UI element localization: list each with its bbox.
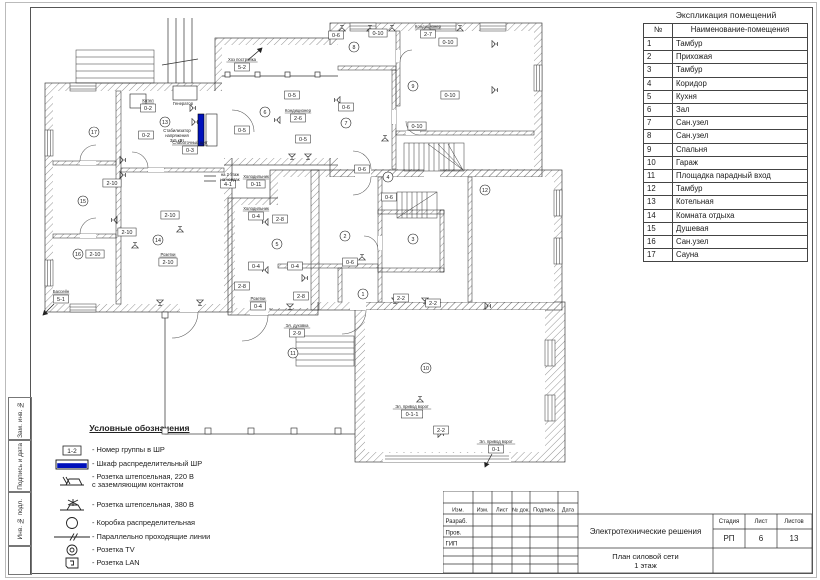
explication-row: 17 Сауна	[644, 249, 808, 262]
room-number-cell: 17	[644, 249, 673, 262]
room-number-cell: 7	[644, 117, 673, 130]
tb-col-header: Дата	[562, 508, 575, 514]
legend-item: - Розетка штепсельная, 380 В	[52, 498, 194, 512]
group-label-text: 0-2	[142, 133, 150, 139]
room-number-cell: 4	[644, 77, 673, 90]
room-name-cell: Сан.узел	[673, 117, 808, 130]
explication-row: 10 Гараж	[644, 156, 808, 169]
sheet-title-1: План силовой сети	[612, 552, 678, 561]
room-number: 4	[383, 172, 393, 182]
group-label-text: 0-1	[492, 447, 500, 453]
room-number-cell: 10	[644, 156, 673, 169]
group-label-text: 2-7	[424, 32, 432, 38]
explication-row: 12 Тамбур	[644, 183, 808, 196]
explication-row: 16 Сан.узел	[644, 236, 808, 249]
project-title: Электротехнические решения	[590, 527, 702, 536]
explication-row: 9 Спальня	[644, 143, 808, 156]
room-number-text: 9	[412, 84, 415, 90]
plan-caption: на чердак	[220, 177, 239, 182]
room-number-cell: 5	[644, 90, 673, 103]
group-label-caption: Эл. духовка	[285, 323, 309, 328]
group-label-text: 0-4	[291, 264, 299, 270]
room-number-text: 6	[264, 110, 267, 116]
group-label-caption: Холодильник	[243, 174, 269, 179]
room-number: 9	[408, 81, 418, 91]
group-label: 0-10	[369, 29, 387, 37]
room-number: 6	[260, 107, 270, 117]
group-label-text: 0-4	[254, 304, 262, 310]
group-label: 2-2	[426, 299, 441, 307]
group-label-text: 2-9	[293, 331, 301, 337]
room-number: 17	[89, 127, 99, 137]
room-number: 13	[160, 117, 170, 127]
group-label-text: 4-1	[224, 182, 232, 188]
explication-col-num: №	[644, 24, 673, 38]
rooms-layer	[53, 31, 554, 452]
group-label-text: 0-4	[252, 264, 260, 270]
group-label: 2-10Розетки	[159, 252, 177, 266]
group-label-text: 0-10	[442, 40, 453, 46]
group-label-text: 0-4	[252, 214, 260, 220]
stage-label: Стадия	[719, 519, 739, 525]
group-label-text: 0-5	[299, 137, 307, 143]
room-number-text: 8	[353, 45, 356, 51]
explication-row: 7 Сан.узел	[644, 117, 808, 130]
group-label-text: 2-8	[297, 294, 305, 300]
group-label-caption: Кондиционер	[285, 108, 312, 113]
sheets-value: 13	[790, 534, 799, 543]
legend-item: - Параллельно проходящие линии	[52, 530, 210, 544]
room-name-cell: Коридор	[673, 77, 808, 90]
room-name-cell: Тамбур	[673, 64, 808, 77]
group-label: 2-10	[103, 179, 121, 187]
legend-item-label: - Розетка LAN	[92, 559, 140, 567]
explication-col-name: Наименование-помещения	[673, 24, 808, 38]
room-number-text: 11	[290, 351, 296, 357]
sheets-label: Листов	[784, 519, 804, 525]
explication-row: 3 Тамбур	[644, 64, 808, 77]
room-number-cell: 9	[644, 143, 673, 156]
group-label: 2-9Эл. духовка	[284, 323, 310, 337]
room-name-cell: Гараж	[673, 156, 808, 169]
junction-box-icon	[52, 516, 92, 530]
group-label: 0-4Розетки	[250, 296, 267, 310]
room-name-cell: Тамбур	[673, 183, 808, 196]
room-name-cell: Сауна	[673, 249, 808, 262]
room-number: 14	[153, 235, 163, 245]
explication-row: 15 Душевая	[644, 222, 808, 235]
room-name-cell: Комната отдыха	[673, 209, 808, 222]
room-number-cell: 15	[644, 222, 673, 235]
room-number-text: 1	[362, 292, 365, 298]
group-label-caption: Кондиционер	[415, 24, 442, 29]
tb-col-header: Изм.	[477, 508, 489, 514]
room-number-text: 4	[387, 175, 390, 181]
group-label: 2-10	[118, 228, 136, 236]
room-number-text: 16	[75, 252, 81, 258]
room-number: 12	[480, 185, 490, 195]
legend-item-label: - Коробка распределительная	[92, 519, 195, 527]
tb-row-label: Разраб.	[446, 519, 468, 525]
room-number: 2	[340, 231, 350, 241]
room-number: 7	[341, 118, 351, 128]
group-label-text: 0-5	[288, 93, 296, 99]
room-number-cell: 16	[644, 236, 673, 249]
room-name-cell: Площадка парадный вход	[673, 170, 808, 183]
group-label-text: 2-10	[106, 181, 117, 187]
socket-220-icon	[52, 474, 92, 488]
group-label-text: 0-10	[444, 93, 455, 99]
group-label-text: 2-8	[276, 217, 284, 223]
frame-cell-label: Подпись и дата	[17, 443, 24, 490]
tb-col-header: Подпись	[533, 508, 555, 514]
legend-item: - Розетка TV	[52, 543, 135, 557]
room-name-cell: Спальня	[673, 143, 808, 156]
socket-380-icon	[52, 498, 92, 512]
group-label: 0-4	[288, 262, 303, 270]
group-label: 0-5	[296, 135, 311, 143]
sheet-title-2: 1 этаж	[634, 561, 656, 570]
group-label-caption: Эл. привод ворот	[479, 439, 513, 444]
frame-cell-zam-inv: Зам. инв. №	[8, 397, 32, 441]
room-number: 11	[288, 348, 298, 358]
room-number-cell: 12	[644, 183, 673, 196]
group-label: 0-2Котел	[141, 98, 156, 112]
group-label: 0-11Холодильник	[243, 174, 269, 188]
group-label-text: 0-6	[332, 33, 340, 39]
group-label-text: 2-10	[162, 260, 173, 266]
group-label-text: 2-8	[238, 284, 246, 290]
legend-item-label: - Розетка штепсельная, 380 В	[92, 501, 194, 509]
group-label-caption: Эл. привод ворот	[395, 404, 429, 409]
group-label: 0-6	[382, 193, 397, 201]
group-label-text: 2-6	[294, 116, 302, 122]
room-number-cell: 14	[644, 209, 673, 222]
group-label: 0-6	[355, 165, 370, 173]
group-label-caption: Холодильник	[243, 206, 269, 211]
room-name-cell: Котельная	[673, 196, 808, 209]
explication-table: № Наименование-помещения 1 Тамбур2 Прихо…	[643, 23, 808, 262]
parallel-lines-icon	[52, 530, 92, 544]
group-label: 0-10	[408, 122, 426, 130]
lan-icon	[52, 556, 92, 570]
group-label: 0-10	[439, 38, 457, 46]
room-name-cell: Зал	[673, 104, 808, 117]
room-number: 10	[421, 363, 431, 373]
frame-cell-podpis-data: Подпись и дата	[8, 439, 32, 493]
group-label-caption: Розетки	[250, 296, 266, 301]
group-label: 0-5	[285, 91, 300, 99]
group-label: 0-4	[249, 262, 264, 270]
group-label-text: 0-6	[358, 167, 366, 173]
group-label: 2-8	[273, 215, 288, 223]
plan-caption: Генератор	[173, 101, 194, 106]
room-number: 5	[272, 239, 282, 249]
service-entry-lines	[162, 18, 198, 83]
explication-row: 4 Коридор	[644, 77, 808, 90]
room-number-cell: 6	[644, 104, 673, 117]
group-label-text: 0-6	[385, 195, 393, 201]
group-label: 2-8	[294, 292, 309, 300]
room-name-cell: Кухня	[673, 90, 808, 103]
drawing-sheet: { "sheet": { "side_labels": ["Зам. инв. …	[0, 0, 820, 580]
room-number-text: 5	[276, 242, 279, 248]
explication-title: Экспликация помещений	[643, 10, 809, 20]
group-label-text: 0-11	[251, 182, 262, 188]
group-label-text: 0-6	[346, 260, 354, 266]
room-name-cell: Прихожая	[673, 51, 808, 64]
frame-cell-label: Инв. № подл.	[17, 499, 24, 540]
stage-value: РП	[723, 534, 734, 543]
tb-col-header: Лист	[496, 508, 508, 514]
group-label-text: 2-2	[397, 296, 405, 302]
group-label: 0-6	[343, 258, 358, 266]
legend-item: - Розетка LAN	[52, 556, 140, 570]
group-label-text: 2-10	[121, 230, 132, 236]
room-number-cell: 8	[644, 130, 673, 143]
group-label-caption: Розетки	[160, 252, 176, 257]
room-number-text: 7	[345, 121, 348, 127]
legend-item-label: - Розетка штепсельная, 220 В с заземляющ…	[92, 473, 194, 489]
explication-row: 6 Зал	[644, 104, 808, 117]
title-block: Электротехнические решения План силовой …	[443, 491, 812, 573]
explication-row: 11 Площадка парадный вход	[644, 170, 808, 183]
generator-box	[173, 86, 197, 100]
room-number-text: 17	[91, 130, 97, 136]
room-number: 16	[73, 249, 83, 259]
explication-row: 2 Прихожая	[644, 51, 808, 64]
tb-row-label: ГИП	[446, 542, 458, 548]
explication-row: 1 Тамбур	[644, 38, 808, 51]
group-label: 2-10	[161, 211, 179, 219]
group-label-text: 0-5	[238, 128, 246, 134]
sheet-label: Лист	[754, 519, 767, 525]
plan-caption: 3х5 кВт	[170, 138, 184, 143]
explication-row: 13 Котельная	[644, 196, 808, 209]
tb-col-header: Изм.	[452, 508, 464, 514]
legend-item-label: - Розетка TV	[92, 546, 135, 554]
legend-item-label: - Параллельно проходящие линии	[92, 533, 210, 541]
group-label: 2-2	[434, 426, 449, 434]
group-label-text: 0-3	[186, 148, 194, 154]
group-label-text: 2-10	[89, 252, 100, 258]
group-label-caption: Бассейн	[53, 289, 70, 294]
tb-row-label: Пров.	[446, 531, 462, 537]
group-label: 0-10	[441, 91, 459, 99]
group-label: 2-2	[394, 294, 409, 302]
group-label: 0-6	[339, 103, 354, 111]
porch	[162, 312, 355, 434]
room-name-cell: Душевая	[673, 222, 808, 235]
legend-item: - Коробка распределительная	[52, 516, 195, 530]
explication-row: 5 Кухня	[644, 90, 808, 103]
room-number-text: 2	[344, 234, 347, 240]
room-name-cell: Тамбур	[673, 38, 808, 51]
legend-item: - Розетка штепсельная, 220 В с заземляющ…	[52, 474, 194, 488]
room-explication: Экспликация помещений № Наименование-пом…	[643, 10, 809, 262]
sheet-value: 6	[759, 534, 764, 543]
group-label: 5-1Бассейн	[53, 289, 70, 303]
room-number-text: 10	[423, 366, 429, 372]
room-name-cell: Сан.узел	[673, 130, 808, 143]
group-label-text: 5-2	[238, 65, 246, 71]
group-label-text: 5-1	[57, 297, 65, 303]
room-number-cell: 2	[644, 51, 673, 64]
room-number-cell: 1	[644, 38, 673, 51]
frame-cell-empty	[8, 545, 32, 575]
explication-row: 8 Сан.узел	[644, 130, 808, 143]
room-number-text: 13	[162, 120, 168, 126]
group-label-text: 0-2	[144, 106, 152, 112]
group-label: 2-10	[86, 250, 104, 258]
group-label: 0-2	[139, 131, 154, 139]
room-number: 3	[408, 234, 418, 244]
room-name-cell: Сан.узел	[673, 236, 808, 249]
group-label: 2-8	[235, 282, 250, 290]
title-block-texts: Электротехнические решения План силовой …	[446, 508, 804, 571]
room-number-text: 3	[412, 237, 415, 243]
room-number: 15	[78, 196, 88, 206]
room-number-text: 12	[482, 188, 488, 194]
tv-icon	[52, 543, 92, 557]
room-number-cell: 11	[644, 170, 673, 183]
stabilizer-box	[206, 114, 217, 146]
group-label-text: 0-10	[372, 31, 383, 37]
room-number: 1	[358, 289, 368, 299]
room-number-cell: 3	[644, 64, 673, 77]
frame-cell-inv-podl: Инв. № подл.	[8, 491, 32, 547]
group-label: 0-6	[329, 31, 344, 39]
group-label-text: 0-6	[342, 105, 350, 111]
explication-row: 14 Комната отдыха	[644, 209, 808, 222]
group-label-text: 0-10	[411, 124, 422, 130]
room-number: 8	[349, 42, 359, 52]
frame-cell-label: Зам. инв. №	[17, 401, 24, 438]
group-label-caption: Котел	[142, 98, 154, 103]
group-label-text: 2-2	[429, 301, 437, 307]
tb-col-header: № док.	[512, 508, 530, 514]
group-label-text: 2-2	[437, 428, 445, 434]
group-label-text: 2-10	[164, 213, 175, 219]
group-label: 0-5	[235, 126, 250, 134]
floor-plan: 5-2Хоз постройка0-60-102-7Кондиционер0-1…	[40, 10, 600, 470]
room-number-cell: 13	[644, 196, 673, 209]
room-number-text: 14	[155, 238, 161, 244]
group-label-caption: Хоз постройка	[228, 57, 257, 62]
group-label-text: 0-1-1	[406, 412, 419, 418]
room-number-text: 15	[80, 199, 86, 205]
